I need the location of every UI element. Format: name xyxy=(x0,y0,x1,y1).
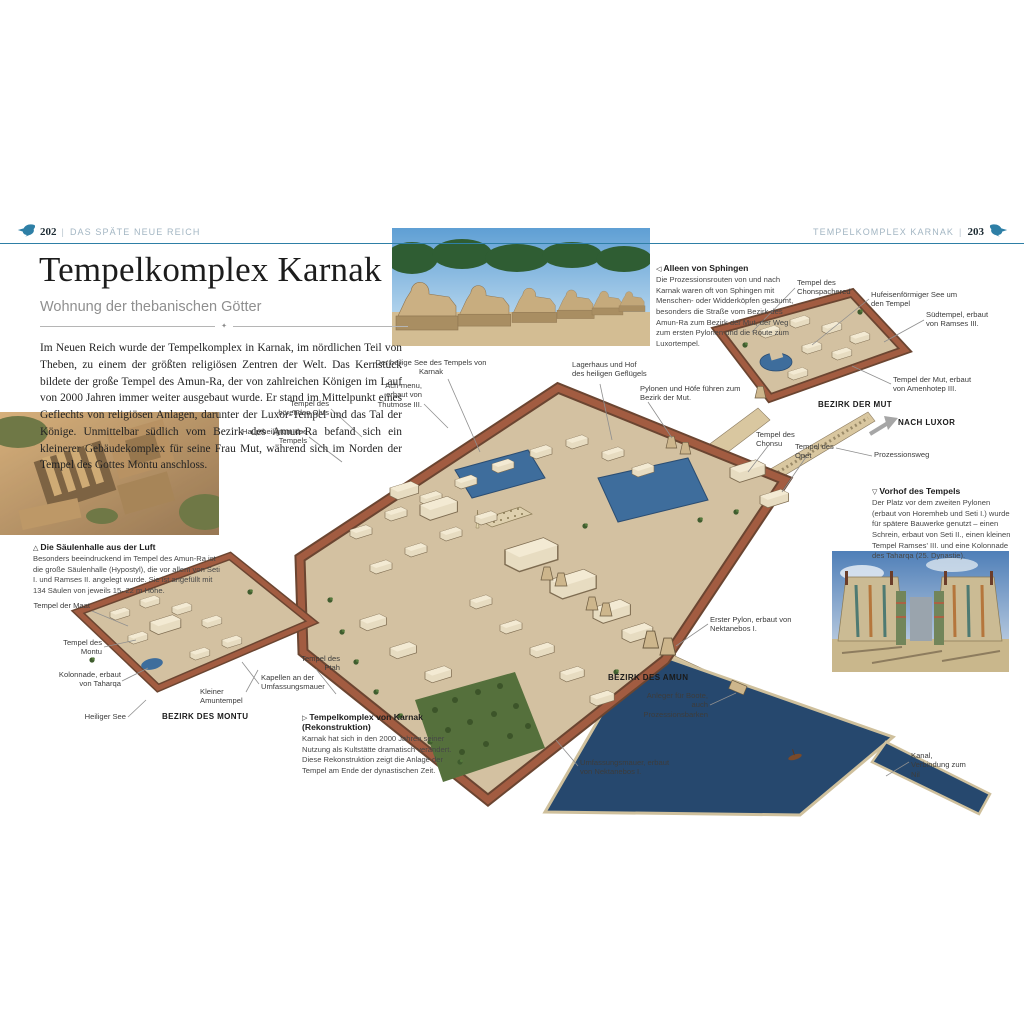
zone-bezirk-des-amun: BEZIRK DES AMUN xyxy=(608,673,688,682)
caption-marker-icon: ▷ xyxy=(302,715,307,722)
caption-title: Alleen von Sphingen xyxy=(663,263,748,273)
page-number-left: 202 xyxy=(40,226,57,238)
label-tempel-hoerendes-ohr: Tempel des hörenden Ohrs xyxy=(259,399,329,418)
caption-body: Karnak hat sich in den 2000 Jahren seine… xyxy=(302,734,454,777)
running-header-left: 202|DAS SPÄTE NEUE REICH xyxy=(40,226,200,238)
label-heiliger-see-karnak: Der heilige See des Tempels von Karnak xyxy=(375,358,487,377)
label-kapellen: Kapellen an der Umfassungsmauer xyxy=(261,673,327,692)
page-title: Tempelkomplex Karnak xyxy=(39,250,382,290)
label-lagerhaus: Lagerhaus und Hof des heiligen Geflügels xyxy=(572,360,650,379)
sphinx-avenue-photo xyxy=(392,228,650,346)
label-tempel-des-ptah: Tempel des Ptah xyxy=(284,654,340,673)
header-rule xyxy=(0,243,1024,244)
label-hufeisen-see: Hufeisenförmiger See um den Tempel xyxy=(871,290,965,309)
label-chonspachered: Tempel des Chonspachered xyxy=(797,278,875,297)
label-erster-pylon: Erster Pylon, erbaut von Nektanebos I. xyxy=(710,615,796,634)
nach-luxor-arrow xyxy=(870,416,898,434)
running-header-right: TEMPELKOMPLEX KARNAK|203 xyxy=(813,226,984,238)
label-tempel-der-maat: Tempel der Maat xyxy=(28,601,90,610)
hieroglyph-bird-icon xyxy=(988,221,1008,239)
label-prozessionsweg: Prozessionsweg xyxy=(874,450,954,459)
label-tempel-des-opet: Tempel des Opet xyxy=(795,442,841,461)
zone-bezirk-der-mut: BEZIRK DER MUT xyxy=(818,400,892,409)
fleuron-icon: ✦ xyxy=(215,322,233,330)
caption-saeulenhalle: △Die Säulenhalle aus der Luft Besonders … xyxy=(33,542,221,597)
page-number-right: 203 xyxy=(968,226,985,238)
zone-nach-luxor: NACH LUXOR xyxy=(898,418,955,427)
zone-bezirk-des-montu: BEZIRK DES MONTU xyxy=(162,712,248,721)
label-kanal: Kanal, Verbindung zum Nil xyxy=(911,751,973,779)
label-heiliger-see-montu: Heiliger See xyxy=(60,712,126,721)
label-tempel-der-mut: Tempel der Mut, erbaut von Amenhotep III… xyxy=(893,375,985,394)
hieroglyph-bird-icon xyxy=(17,221,37,239)
caption-marker-icon: △ xyxy=(33,545,38,552)
caption-body: Besonders beeindruckend im Tempel des Am… xyxy=(33,554,221,597)
vorhof-render-photo xyxy=(832,551,1009,672)
label-suedtempel: Südtempel, erbaut von Ramses III. xyxy=(926,310,1002,329)
label-kolonnade-taharqa: Kolonnade, erbaut von Taharqa xyxy=(45,670,121,689)
chapter-title-left: DAS SPÄTE NEUE REICH xyxy=(70,227,201,237)
caption-title: Die Säulenhalle aus der Luft xyxy=(40,542,155,552)
caption-marker-icon: ◁ xyxy=(656,266,661,273)
caption-body: Die Prozessionsrouten von und nach Karna… xyxy=(656,275,798,349)
caption-vorhof: ▽Vorhof des Tempels Der Platz vor dem zw… xyxy=(872,486,1014,562)
ornament-divider: ✦ xyxy=(40,322,408,330)
label-pylonen-hoefe: Pylonen und Höfe führen zum Bezirk der M… xyxy=(640,384,758,403)
label-kleiner-amuntempel: Kleiner Amuntempel xyxy=(200,687,258,706)
caption-body: Der Platz vor dem zweiten Pylonen (erbau… xyxy=(872,498,1014,562)
label-umfassungsmauer: Umfassungsmauer, erbaut von Nektanebos I… xyxy=(580,758,678,777)
header-separator: | xyxy=(62,227,65,237)
book-page: 202|DAS SPÄTE NEUE REICH TEMPELKOMPLEX K… xyxy=(0,0,1024,1024)
caption-title: Tempelkomplex von Karnak (Rekonstruktion… xyxy=(302,712,423,732)
label-anleger: Anleger für Boote, auch Prozessionsbarke… xyxy=(630,691,708,719)
caption-sphingen: ◁Alleen von Sphingen Die Prozessionsrout… xyxy=(656,263,798,349)
header-separator: | xyxy=(959,227,962,237)
label-tempel-des-montu: Tempel des Montu xyxy=(40,638,102,657)
label-hauptheiligtum: Hauptheiligtum des Tempels xyxy=(235,427,307,446)
label-ach-menu: Ach-menu, erbaut von Thutmose III. xyxy=(362,381,422,409)
caption-title: Vorhof des Tempels xyxy=(879,486,960,496)
page-subtitle: Wohnung der thebanischen Götter xyxy=(40,299,261,315)
chapter-title-right: TEMPELKOMPLEX KARNAK xyxy=(813,227,954,237)
caption-marker-icon: ▽ xyxy=(872,489,877,496)
intro-paragraph: Im Neuen Reich wurde der Tempelkomplex i… xyxy=(40,340,402,474)
caption-rekonstruktion: ▷Tempelkomplex von Karnak (Rekonstruktio… xyxy=(302,712,454,777)
